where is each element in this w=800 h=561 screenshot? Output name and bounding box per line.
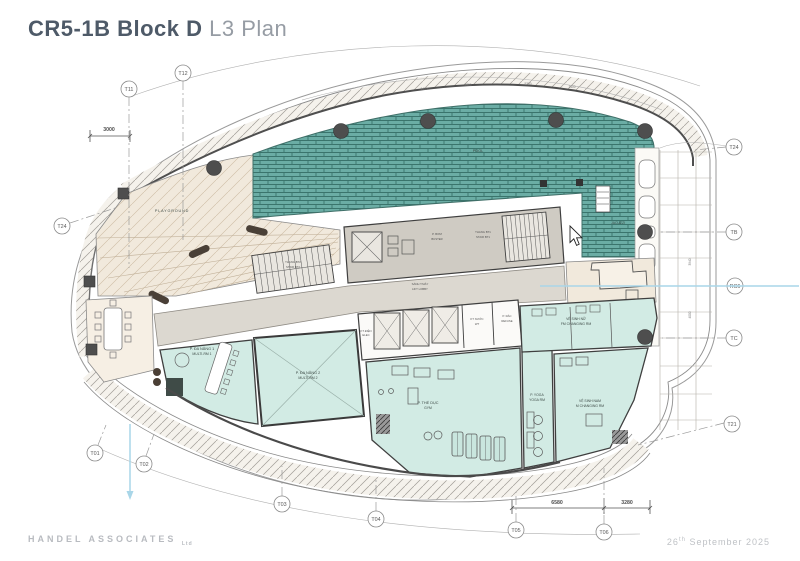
refuse-label-vi: P. RÁC bbox=[503, 314, 512, 318]
grid-bubble-t02: T02 bbox=[139, 462, 148, 468]
stair-bt1-label-vi: THANG BT1 bbox=[475, 230, 491, 234]
multi1-label-vi: P. ĐA NĂNG 1 bbox=[190, 347, 214, 351]
gym-mat bbox=[376, 414, 390, 434]
multi2-label-vi: P. ĐA NĂNG 2 bbox=[296, 371, 320, 375]
lift-lobby-label-en: LIFT LOBBY bbox=[412, 287, 428, 291]
fchanging-label-vi: VỆ SINH NỮ bbox=[566, 316, 586, 321]
date-day: 26 bbox=[667, 537, 679, 547]
locker-block bbox=[612, 430, 628, 444]
lift-shafts bbox=[374, 307, 458, 349]
date-rest: September 2025 bbox=[686, 537, 770, 547]
dim-3280: 3280 bbox=[621, 500, 633, 506]
grid-bubble-t06: T06 bbox=[599, 530, 608, 536]
stool bbox=[153, 378, 161, 386]
multi-room-2: P. ĐA NĂNG 2 MULTI-RM 2 bbox=[254, 330, 364, 426]
lift-lobby-label-vi: SẢNH T.MÁY bbox=[412, 281, 429, 286]
gym-label-vi: P. THỂ DỤC bbox=[418, 400, 439, 405]
pool-skimmer bbox=[540, 180, 547, 187]
yoga-label-en: YOGA RM bbox=[529, 398, 545, 402]
grid-bubble-t03: T03 bbox=[277, 502, 286, 508]
refuse-label-en: REFUSE bbox=[501, 319, 512, 323]
pool-skimmer bbox=[576, 179, 583, 186]
grid-bubble-t05: T05 bbox=[511, 528, 520, 534]
stair-bt2-label-vi: THANG BT2 bbox=[285, 260, 301, 264]
pump-label-vi: P. BƠM bbox=[432, 232, 442, 236]
dim-3940: 3940 bbox=[688, 258, 692, 265]
grid-bubble-t01: T01 bbox=[90, 451, 99, 457]
dining-terrace bbox=[86, 296, 154, 382]
issue-date: 26th September 2025 bbox=[667, 537, 770, 547]
female-changing-room: VỆ SINH NỮ FM CHANGING RM bbox=[520, 298, 657, 352]
gym-label-en: GYM bbox=[424, 406, 432, 410]
stair-bt2-label-en: STAIR BT2 bbox=[286, 265, 300, 269]
dim-1400b: 1400 bbox=[568, 85, 575, 89]
dim-5300a: 5300 bbox=[464, 83, 471, 87]
grid-bubble-t04: T04 bbox=[371, 517, 380, 523]
dim-4000: 4000 bbox=[688, 311, 692, 318]
mouse-cursor-icon bbox=[570, 226, 582, 245]
grid-bubble-rc6: RC6 bbox=[730, 284, 741, 290]
dim-3000: 3000 bbox=[103, 127, 115, 133]
dim-6580: 6580 bbox=[551, 500, 563, 506]
pool-label: POOL bbox=[473, 149, 484, 153]
water-label-vi: KT NƯỚC bbox=[470, 316, 483, 321]
stair-bt1-label-en: STAIR BT1 bbox=[476, 235, 490, 239]
date-suffix: th bbox=[679, 537, 686, 543]
mchanging-label-en: M CHANGING RM bbox=[576, 404, 604, 408]
yoga-label-vi: P. YOGA bbox=[530, 393, 544, 397]
jacuzzi-label: JACUZZI bbox=[611, 221, 625, 225]
dim-bottom-group: 6580 3280 bbox=[510, 498, 652, 514]
grid-bubble-t12: T12 bbox=[178, 71, 187, 77]
stair-bt1-treads bbox=[502, 212, 550, 262]
grid-bubble-tb: TB bbox=[731, 230, 738, 236]
gym-room: P. THỂ DỤC GYM bbox=[366, 348, 522, 477]
mchanging-label-vi: VỆ SINH NAM bbox=[579, 398, 601, 403]
dining-table bbox=[104, 308, 122, 350]
service-lift bbox=[352, 232, 382, 262]
water-label-en: WT bbox=[475, 322, 480, 326]
blue-arrowhead bbox=[127, 491, 134, 500]
firm-suffix: Ltd bbox=[182, 541, 193, 547]
elec-label-en: ELEC bbox=[362, 333, 369, 337]
grid-bubble-t24-right: T24 bbox=[729, 145, 738, 151]
firm-label: HANDEL ASSOCIATES bbox=[28, 534, 176, 544]
project-title: CR5-1B Block D bbox=[28, 16, 202, 41]
stool bbox=[153, 368, 161, 376]
dim-1400a: 1400 bbox=[420, 87, 427, 91]
firm-name: HANDEL ASSOCIATES Ltd bbox=[28, 534, 193, 547]
grid-bubble-t24-left: T24 bbox=[57, 224, 66, 230]
multi1-label-en: MULTI-RM 1 bbox=[192, 352, 211, 356]
dim-5300b: 5300 bbox=[524, 82, 531, 86]
right-dimension-ladder bbox=[660, 150, 712, 430]
fchanging-label-en: FM CHANGING RM bbox=[561, 322, 592, 326]
grid-bubble-tc: TC bbox=[730, 336, 737, 342]
sheet-name: L3 Plan bbox=[209, 16, 287, 41]
jacuzzi-ladder bbox=[596, 186, 610, 212]
yoga-room: P. YOGA YOGA RM bbox=[522, 350, 554, 468]
drawing-sheet: PLAYGROUND POOL JACUZZI bbox=[0, 0, 800, 561]
multi2-label-en: MULTI-RM 2 bbox=[298, 376, 317, 380]
grid-bubble-t11: T11 bbox=[125, 87, 134, 93]
dim-3000-group: 3000 bbox=[88, 127, 132, 142]
floor-plan-canvas: PLAYGROUND POOL JACUZZI bbox=[0, 0, 800, 561]
sheet-title: CR5-1B Block D L3 Plan bbox=[28, 16, 287, 42]
playground-label: PLAYGROUND bbox=[155, 209, 189, 213]
grid-bubble-t21: T21 bbox=[727, 422, 736, 428]
pump-label-en: BUSTER bbox=[431, 237, 442, 241]
